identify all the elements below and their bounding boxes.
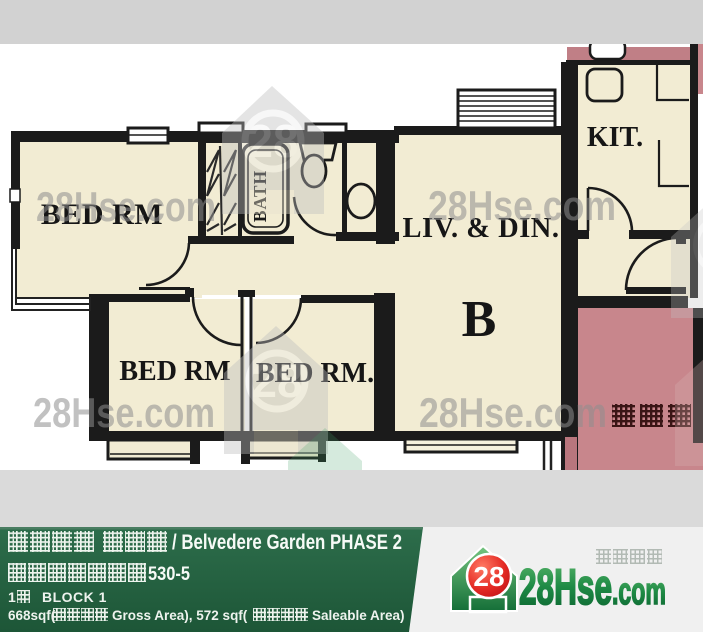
svg-text:B: B bbox=[462, 291, 497, 348]
svg-text:28Hse.com: 28Hse.com bbox=[33, 389, 215, 436]
svg-text:28Hse: 28Hse bbox=[519, 559, 612, 615]
svg-text:28: 28 bbox=[473, 561, 504, 592]
svg-text:KIT.: KIT. bbox=[587, 122, 643, 153]
svg-text:.com: .com bbox=[612, 571, 666, 613]
svg-text:1: 1 bbox=[8, 589, 16, 605]
svg-text:28: 28 bbox=[247, 115, 298, 167]
svg-text:BLOCK 1: BLOCK 1 bbox=[42, 589, 107, 605]
svg-text:28: 28 bbox=[251, 355, 302, 407]
svg-text:/ Belvedere Garden PHASE 2: / Belvedere Garden PHASE 2 bbox=[172, 531, 402, 554]
svg-text:28Hse.com: 28Hse.com bbox=[428, 182, 616, 229]
svg-text:668sqf(: 668sqf( bbox=[8, 608, 56, 623]
svg-text:530-5: 530-5 bbox=[148, 564, 190, 585]
svg-text:BED RM: BED RM bbox=[119, 356, 230, 387]
svg-text:Gross Area), 572 sqf(: Gross Area), 572 sqf( bbox=[112, 608, 248, 623]
svg-text:28Hse.com: 28Hse.com bbox=[36, 183, 216, 230]
svg-text:28Hse.com: 28Hse.com bbox=[419, 389, 607, 436]
svg-text:Saleable Area): Saleable Area) bbox=[312, 608, 405, 623]
